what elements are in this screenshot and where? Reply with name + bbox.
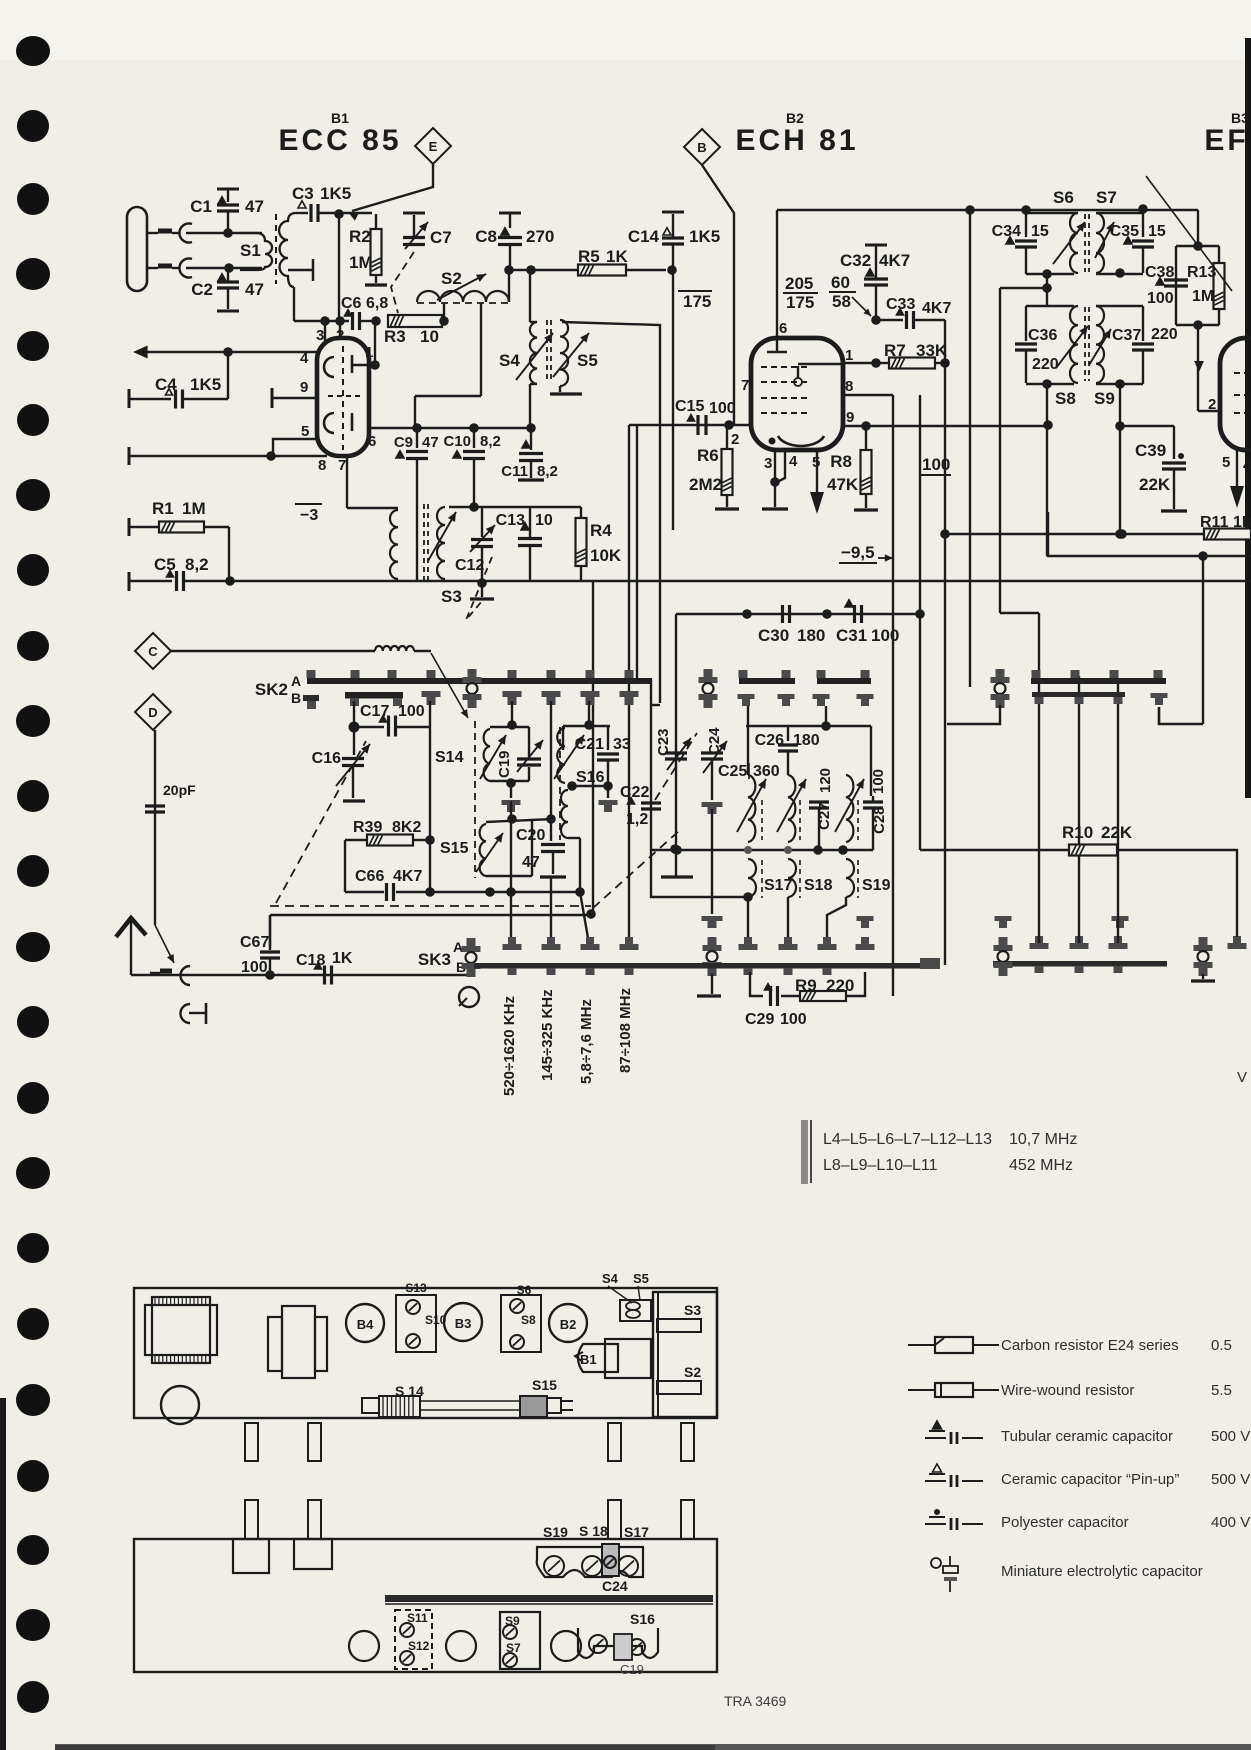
svg-text:A: A — [291, 673, 301, 689]
svg-text:S15: S15 — [532, 1377, 557, 1393]
svg-text:S16: S16 — [576, 769, 605, 786]
svg-text:8,2: 8,2 — [537, 463, 558, 480]
svg-text:C66: C66 — [355, 868, 384, 885]
svg-text:S4: S4 — [602, 1271, 619, 1286]
svg-text:S8: S8 — [1055, 389, 1076, 408]
svg-text:S5: S5 — [633, 1271, 649, 1286]
svg-text:8,2: 8,2 — [480, 433, 501, 450]
svg-text:R9: R9 — [795, 976, 817, 995]
svg-text:S5: S5 — [577, 351, 598, 370]
svg-text:S4: S4 — [499, 351, 520, 370]
svg-text:100: 100 — [241, 959, 268, 976]
svg-text:C1: C1 — [190, 197, 212, 216]
svg-text:L8–L9–L10–L11: L8–L9–L10–L11 — [823, 1157, 938, 1174]
svg-text:C4: C4 — [155, 375, 177, 394]
svg-text:V: V — [1237, 1069, 1247, 1086]
svg-text:C26: C26 — [755, 732, 784, 749]
svg-text:S17: S17 — [624, 1524, 649, 1540]
svg-text:4: 4 — [789, 453, 798, 470]
svg-text:C34: C34 — [992, 223, 1021, 240]
svg-text:1K5: 1K5 — [689, 227, 720, 246]
svg-text:SK2: SK2 — [255, 680, 288, 699]
svg-text:B: B — [291, 690, 301, 706]
svg-text:4: 4 — [1243, 457, 1251, 474]
svg-text:5: 5 — [1222, 454, 1230, 471]
svg-text:100: 100 — [398, 703, 425, 720]
svg-text:C22: C22 — [620, 784, 649, 801]
svg-text:15: 15 — [1148, 223, 1166, 240]
svg-text:1M: 1M — [182, 499, 206, 518]
svg-text:47: 47 — [245, 280, 264, 299]
svg-text:C16: C16 — [312, 750, 341, 767]
svg-text:S6: S6 — [1053, 188, 1074, 207]
svg-text:−9,5: −9,5 — [841, 543, 875, 562]
svg-text:6: 6 — [368, 433, 376, 450]
svg-text:1: 1 — [365, 344, 373, 361]
svg-text:10: 10 — [420, 327, 439, 346]
svg-text:S2: S2 — [441, 269, 462, 288]
svg-text:33K: 33K — [916, 341, 948, 360]
svg-text:S19: S19 — [862, 877, 891, 894]
svg-text:87÷108 MHz: 87÷108 MHz — [617, 988, 634, 1073]
svg-text:1: 1 — [845, 347, 853, 364]
svg-text:180: 180 — [797, 626, 825, 645]
svg-text:10,7 MHz: 10,7 MHz — [1009, 1131, 1077, 1148]
svg-text:S 18: S 18 — [579, 1523, 608, 1539]
svg-text:100: 100 — [870, 769, 887, 794]
svg-text:C17: C17 — [360, 703, 389, 720]
svg-text:520÷1620 KHz: 520÷1620 KHz — [501, 996, 518, 1096]
svg-text:S2: S2 — [684, 1364, 701, 1380]
svg-text:145÷325 KHz: 145÷325 KHz — [539, 989, 556, 1081]
svg-text:ECH 81: ECH 81 — [735, 124, 858, 157]
svg-text:220: 220 — [1032, 356, 1059, 373]
svg-text:S19: S19 — [543, 1524, 568, 1540]
svg-text:1M: 1M — [349, 253, 373, 272]
svg-text:C19: C19 — [496, 750, 513, 778]
svg-text:C2: C2 — [191, 280, 213, 299]
svg-text:Wire-wound resistor: Wire-wound resistor — [1001, 1382, 1134, 1399]
svg-text:33: 33 — [613, 736, 631, 753]
svg-text:20pF: 20pF — [163, 782, 196, 798]
svg-text:15: 15 — [1031, 223, 1049, 240]
svg-text:S1: S1 — [240, 241, 261, 260]
svg-text:R13: R13 — [1187, 264, 1216, 281]
svg-text:C5: C5 — [154, 555, 176, 574]
svg-text:C32: C32 — [840, 251, 871, 270]
svg-text:47K: 47K — [827, 475, 859, 494]
svg-text:22K: 22K — [1139, 475, 1171, 494]
svg-text:EF 8: EF 8 — [1204, 124, 1251, 157]
svg-text:8,2: 8,2 — [185, 555, 209, 574]
svg-text:60: 60 — [831, 273, 850, 292]
svg-text:C19: C19 — [620, 1662, 644, 1677]
svg-text:Carbon resistor E24 series: Carbon resistor E24 series — [1001, 1337, 1179, 1354]
svg-text:3: 3 — [316, 327, 324, 344]
svg-text:1M: 1M — [1192, 288, 1214, 305]
svg-text:TRA 3469: TRA 3469 — [724, 1693, 786, 1709]
svg-text:C30: C30 — [758, 626, 789, 645]
svg-text:C36: C36 — [1028, 327, 1057, 344]
svg-text:175: 175 — [786, 293, 814, 312]
svg-text:452 MHz: 452 MHz — [1009, 1157, 1073, 1174]
svg-text:C13: C13 — [496, 512, 525, 529]
svg-text:220: 220 — [1151, 326, 1178, 343]
svg-text:9: 9 — [846, 409, 854, 426]
svg-text:400 V: 400 V — [1211, 1514, 1250, 1531]
svg-text:S17: S17 — [764, 877, 793, 894]
svg-text:1K: 1K — [606, 247, 628, 266]
svg-text:1,2: 1,2 — [626, 811, 648, 828]
svg-text:R6: R6 — [697, 446, 719, 465]
svg-text:4K7: 4K7 — [879, 251, 910, 270]
svg-text:C29: C29 — [745, 1011, 774, 1028]
svg-text:S3: S3 — [441, 587, 462, 606]
svg-text:1K5: 1K5 — [190, 375, 221, 394]
svg-text:R7: R7 — [884, 341, 906, 360]
svg-text:S13: S13 — [405, 1281, 427, 1295]
svg-text:C7: C7 — [430, 228, 452, 247]
svg-text:R2: R2 — [349, 227, 371, 246]
svg-text:R39: R39 — [353, 819, 382, 836]
svg-text:1K5: 1K5 — [320, 184, 351, 203]
svg-text:C33: C33 — [886, 296, 915, 313]
svg-text:L4–L5–L6–L7–L12–L13: L4–L5–L6–L7–L12–L13 — [823, 1131, 992, 1148]
svg-text:B2: B2 — [560, 1317, 577, 1332]
svg-text:ECC 85: ECC 85 — [278, 124, 401, 157]
svg-text:C21: C21 — [575, 736, 604, 753]
svg-text:100: 100 — [922, 455, 950, 474]
svg-text:6: 6 — [779, 320, 787, 337]
svg-text:C9: C9 — [394, 434, 413, 451]
svg-text:47: 47 — [245, 197, 264, 216]
svg-text:8: 8 — [845, 378, 853, 395]
svg-text:C20: C20 — [516, 827, 545, 844]
svg-text:C12: C12 — [455, 557, 484, 574]
svg-text:B: B — [697, 140, 706, 155]
svg-text:S15: S15 — [440, 840, 469, 857]
svg-text:220: 220 — [826, 976, 854, 995]
svg-text:C18: C18 — [296, 952, 325, 969]
svg-text:B3: B3 — [455, 1316, 472, 1331]
svg-text:C31: C31 — [836, 626, 867, 645]
svg-text:C11: C11 — [501, 463, 528, 480]
svg-text:S18: S18 — [804, 877, 833, 894]
svg-text:C3: C3 — [292, 184, 314, 203]
svg-text:360: 360 — [753, 763, 780, 780]
svg-text:47: 47 — [522, 854, 540, 871]
svg-text:C24: C24 — [602, 1578, 628, 1594]
svg-text:5,8÷7,6 MHz: 5,8÷7,6 MHz — [578, 999, 595, 1084]
svg-text:C39: C39 — [1135, 441, 1166, 460]
svg-text:180: 180 — [793, 732, 820, 749]
svg-text:Tubular ceramic capacitor: Tubular ceramic capacitor — [1001, 1428, 1173, 1445]
svg-text:C25: C25 — [718, 763, 747, 780]
svg-text:8: 8 — [318, 457, 326, 474]
svg-text:10K: 10K — [590, 546, 622, 565]
svg-text:0.5: 0.5 — [1211, 1337, 1232, 1354]
svg-text:100: 100 — [871, 626, 899, 645]
svg-text:7: 7 — [338, 457, 346, 474]
svg-text:C67: C67 — [240, 934, 269, 951]
svg-text:R8: R8 — [830, 452, 852, 471]
svg-text:Ceramic capacitor “Pin-up”: Ceramic capacitor “Pin-up” — [1001, 1471, 1179, 1488]
svg-text:C14: C14 — [628, 227, 660, 246]
svg-text:C: C — [148, 644, 158, 659]
svg-text:100: 100 — [1147, 290, 1174, 307]
svg-text:S9: S9 — [1094, 389, 1115, 408]
svg-text:S12: S12 — [408, 1639, 430, 1653]
svg-text:S16: S16 — [630, 1611, 655, 1627]
svg-text:4K7: 4K7 — [393, 868, 422, 885]
svg-text:120: 120 — [817, 768, 834, 793]
svg-text:500 V: 500 V — [1211, 1428, 1250, 1445]
svg-text:500 V: 500 V — [1211, 1471, 1250, 1488]
svg-text:7: 7 — [741, 377, 749, 394]
svg-text:E: E — [429, 139, 438, 154]
svg-text:47: 47 — [422, 434, 439, 451]
svg-text:S7: S7 — [1096, 188, 1117, 207]
svg-text:C35: C35 — [1110, 223, 1139, 240]
svg-text:22K: 22K — [1101, 823, 1133, 842]
svg-text:10: 10 — [535, 512, 553, 529]
svg-text:270: 270 — [526, 227, 554, 246]
svg-text:Miniature electrolytic capacit: Miniature electrolytic capacitor — [1001, 1563, 1203, 1580]
svg-text:R4: R4 — [590, 521, 612, 540]
svg-text:5.5: 5.5 — [1211, 1382, 1232, 1399]
svg-text:R5: R5 — [578, 247, 600, 266]
svg-text:S6: S6 — [517, 1283, 532, 1297]
svg-text:6,8: 6,8 — [366, 295, 388, 312]
svg-text:2: 2 — [731, 431, 739, 448]
svg-text:175: 175 — [683, 292, 711, 311]
svg-text:4K7: 4K7 — [922, 300, 951, 317]
svg-text:9: 9 — [300, 379, 308, 396]
svg-text:R1: R1 — [152, 499, 174, 518]
svg-text:B1: B1 — [580, 1352, 597, 1367]
svg-text:SK3: SK3 — [418, 950, 451, 969]
svg-text:C38: C38 — [1145, 264, 1174, 281]
svg-text:1K: 1K — [332, 950, 353, 967]
svg-text:S8: S8 — [521, 1313, 536, 1327]
svg-text:100: 100 — [780, 1011, 807, 1028]
svg-text:R3: R3 — [384, 327, 406, 346]
svg-text:205: 205 — [785, 274, 813, 293]
svg-text:100: 100 — [709, 400, 736, 417]
svg-text:Polyester capacitor: Polyester capacitor — [1001, 1514, 1129, 1531]
svg-text:C15: C15 — [675, 398, 704, 415]
svg-text:D: D — [148, 705, 157, 720]
svg-text:5: 5 — [301, 423, 309, 440]
svg-text:−3: −3 — [300, 507, 318, 524]
svg-text:C37: C37 — [1112, 327, 1141, 344]
svg-text:C8: C8 — [475, 227, 497, 246]
svg-text:2M2: 2M2 — [689, 475, 722, 494]
svg-text:C6: C6 — [341, 295, 362, 312]
svg-text:58: 58 — [832, 292, 851, 311]
svg-text:C10: C10 — [443, 433, 471, 450]
svg-text:8K2: 8K2 — [392, 819, 421, 836]
svg-text:R10: R10 — [1062, 823, 1093, 842]
svg-text:S3: S3 — [684, 1302, 701, 1318]
svg-text:B4: B4 — [357, 1317, 374, 1332]
svg-text:3: 3 — [764, 455, 772, 472]
svg-text:S14: S14 — [435, 749, 464, 766]
